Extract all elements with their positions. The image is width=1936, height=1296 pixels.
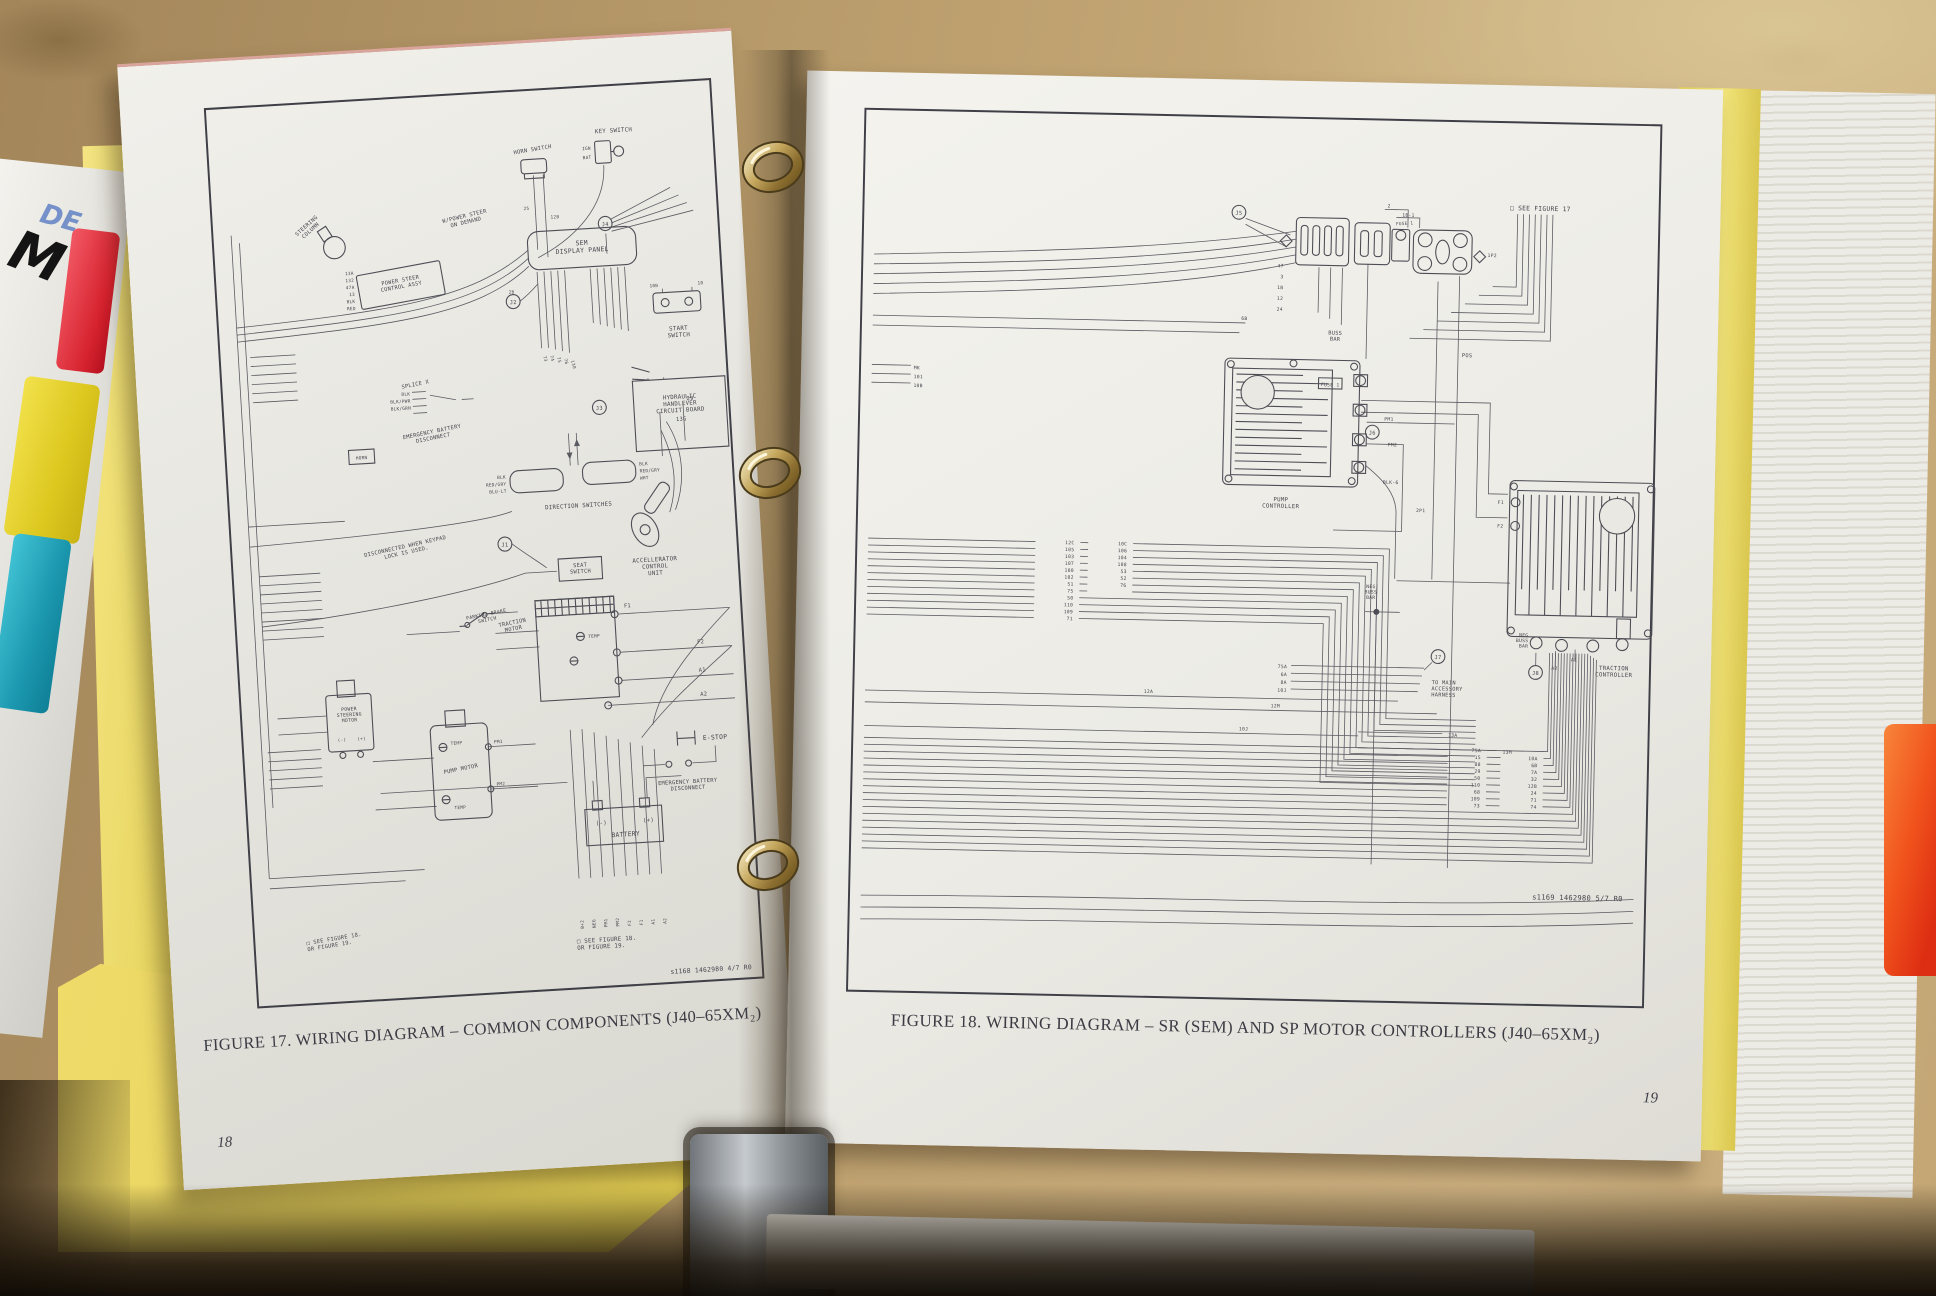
power-steering-motor-label: POWERSTEERINGMOTOR	[336, 706, 362, 725]
seat-switch-label: SEATSWITCH	[570, 562, 592, 576]
binder-rings	[688, 105, 858, 945]
wire-tag: A1	[650, 918, 656, 924]
wire-tag: 12B	[550, 214, 559, 221]
key-ign-tag: IGN	[582, 146, 591, 153]
horn-switch-label: HORN SWITCH	[513, 144, 552, 156]
connector-j8: J8	[1532, 671, 1539, 677]
wire-tag: BLK/GRN	[391, 405, 412, 412]
wire-tag: 47	[1277, 263, 1283, 269]
direction-switches-label: DIRECTION SWITCHES	[545, 501, 613, 511]
wire-tag: 12B	[1528, 784, 1537, 790]
connector-j3: J3	[596, 406, 603, 412]
wire-tag: 130	[569, 360, 577, 370]
wire-tag: NEG	[591, 919, 597, 928]
wire-tag: 106	[1118, 548, 1127, 554]
wire-tag: 52	[1120, 576, 1126, 582]
terminal-f2: F2	[1497, 524, 1503, 530]
wire-tag: 104	[1118, 555, 1127, 561]
battery-neg: (-)	[596, 820, 608, 827]
wire-tag: 51	[1067, 582, 1073, 588]
power-steer-assy-label: POWER STEERCONTROL ASSY	[379, 274, 423, 294]
wire-tag: 1B	[1277, 285, 1283, 291]
wire-tag: 8A	[1281, 680, 1287, 686]
pump-controller-label: PUMPCONTROLLER	[1262, 497, 1300, 510]
keypad-note: DISCONNECTED WHEN KEYPADLOCK IS USED.	[364, 535, 448, 565]
wire-tag: 12C	[1065, 540, 1074, 546]
page-number-18: 18	[217, 1134, 233, 1152]
wire-tag: 75A	[1472, 748, 1481, 754]
wire-tag: 13	[349, 292, 355, 298]
see-figure-17-note: □ SEE FIGURE 17	[1510, 205, 1571, 213]
wire-tag: 2	[1388, 203, 1391, 209]
sem-display-panel-label: SEMDISPLAY PANEL	[555, 237, 609, 256]
wire-tag: 10J	[1277, 688, 1286, 694]
battery-pos: (+)	[643, 818, 655, 825]
wire-tag: 3	[1280, 274, 1283, 280]
connector-j2: J2	[510, 300, 517, 306]
wire-tag: 73	[541, 355, 548, 362]
manual-page-19: □ SEE FIGURE 17 2 1B-1 47 3 1B 12 24 6B …	[785, 71, 1723, 1162]
wire-tag: 75	[1067, 589, 1073, 595]
wire-tag: 105	[1065, 547, 1074, 553]
connector-j7: J7	[1434, 655, 1441, 661]
terminal-pm1: PM1	[494, 739, 503, 746]
terminal-f1: F1	[1498, 500, 1504, 506]
ring-bottom	[739, 840, 798, 890]
wire-tag: 13M	[1502, 750, 1511, 756]
fuse-label: FUSE 1	[1321, 382, 1340, 388]
buss-bar-label: BUSSBAR	[1328, 331, 1342, 343]
wire-tag: PM2	[615, 917, 621, 926]
wire-tag: 15	[1475, 755, 1481, 761]
wire-tag: 103	[1065, 554, 1074, 560]
splice-label: SPLICE X	[401, 379, 430, 391]
see-figure-note: □ SEE FIGURE 18.OR FIGURE 19.	[577, 936, 637, 952]
wire-tag: 12A	[1144, 689, 1153, 695]
wire-tag: A2	[662, 918, 668, 924]
terminal-pm2: PM2	[1388, 442, 1397, 448]
wire-tag: BLK	[347, 299, 356, 306]
terminal-a1: A1	[1571, 657, 1577, 663]
wire-tag: 75A	[1278, 664, 1287, 670]
connector-j1: J1	[501, 542, 508, 548]
wire-tag: 88	[1474, 762, 1480, 768]
figure-18-wiring-diagram: □ SEE FIGURE 17 2 1B-1 47 3 1B 12 24 6B …	[844, 106, 1664, 1011]
doc-code: s1169 1462980 5/7 R0	[1532, 892, 1623, 903]
wire-tag: B+2	[579, 920, 585, 929]
wire-tag: 110	[1471, 783, 1480, 789]
wire-tag: 24	[1531, 791, 1537, 797]
wire-tag: 10J	[1239, 726, 1248, 732]
diagram-labels: STEERINGCOLUMN HORN SWITCH KEY SWITCH IG…	[259, 123, 752, 997]
wire-tag: 53	[1120, 569, 1126, 575]
pos-label: POS	[1462, 353, 1473, 359]
fuse-label: FUSE 1	[1396, 220, 1414, 227]
wire-tag: 71	[1530, 798, 1536, 804]
battery-label: BATTERY	[611, 830, 640, 840]
wire-tag: BLK/PWR	[390, 398, 411, 405]
connector-j6: J6	[1369, 431, 1376, 437]
wire-tag: 110	[1064, 602, 1073, 608]
power-steer-note: W/POWER STEERON DEMAND	[442, 208, 489, 231]
wire-tag: 132	[345, 278, 354, 285]
wire-tag: 10C	[1118, 541, 1127, 547]
wire-tag: 13G	[676, 416, 687, 423]
wire-tag: 101	[914, 374, 923, 380]
wire-tag: 108	[1117, 562, 1126, 568]
terminal-2p1: 2P1	[1416, 508, 1425, 514]
terminal-f1: F1	[624, 603, 631, 609]
wire-tag: PM1	[603, 918, 609, 927]
page-number-19: 19	[1643, 1090, 1658, 1107]
wire-tag: 68	[1474, 790, 1480, 796]
wire-tag: RED/GRY	[639, 467, 660, 474]
wire-tag: 10B	[649, 283, 658, 290]
wire-tag: 74	[548, 355, 555, 362]
key-bat-tag: BAT	[583, 155, 592, 162]
connector-j5: J5	[1235, 211, 1242, 217]
wire-tag: MK	[914, 365, 920, 371]
wire-tag: 13A	[345, 271, 354, 278]
wire-tag: 107	[1065, 561, 1074, 567]
component-symbols	[294, 135, 752, 861]
wire-tag: 12M	[1271, 703, 1280, 709]
figure-18-caption: FIGURE 18. WIRING DIAGRAM – SR (SEM) AND…	[787, 1008, 1703, 1047]
wire-tag: 7A	[1531, 770, 1537, 776]
pos-terminal: (+)	[357, 736, 366, 743]
wire-tag: 75	[555, 356, 562, 363]
traction-controller-label: TRACTIONCONTROLLER	[1595, 666, 1633, 679]
wire-tag: RED	[347, 306, 356, 313]
accelerator-label: ACCELLERATORCONTROLUNIT	[632, 556, 678, 578]
to-main-accessory-label: TO MAINACCESSORYHARNESS	[1431, 680, 1463, 699]
wire-tag: 2B	[509, 289, 515, 295]
key-switch-label: KEY SWITCH	[595, 127, 633, 135]
wire-tag: 109	[1471, 796, 1480, 802]
terminal-temp: TEMP	[451, 740, 463, 747]
wire-tag: WHT	[640, 475, 649, 482]
wire-tag: 74	[1530, 805, 1536, 811]
wire-tag: BLK	[497, 474, 506, 481]
wire-tag: 10A	[1528, 756, 1537, 762]
neg-buss-bar-label: NEGBUSSBAR	[1516, 632, 1529, 649]
connector-j4: J4	[602, 222, 609, 228]
terminal-1p2: 1P2	[1487, 253, 1496, 259]
bottom-shadow	[0, 1184, 1936, 1296]
terminal-pm1: PM1	[1384, 417, 1393, 423]
emergency-battery-mid-label: EMERGENCY BATTERYDISCONNECT	[402, 423, 463, 447]
horn-label: HORN	[356, 455, 368, 462]
terminal-temp: TEMP	[588, 633, 600, 640]
wire-tag: 71	[1067, 616, 1073, 622]
wire-tag: 50	[1067, 595, 1073, 601]
wire-bundle-2	[862, 639, 1597, 863]
terminal-pm2: PM2	[496, 781, 505, 788]
wire-tag: 76	[562, 358, 569, 365]
wire-tag: 1B-1	[1402, 213, 1415, 219]
neg-buss-bar-label: NEGBUSSBAR	[1364, 584, 1377, 601]
wire-tag: 73	[1474, 803, 1480, 809]
terminal-a2: A2	[1551, 666, 1557, 672]
wire-tag: 50	[1474, 776, 1480, 782]
neg-terminal: (-)	[337, 737, 346, 744]
wire-tag: 6B	[1531, 763, 1537, 769]
pump-motor-label: PUMP MOTOR	[443, 763, 479, 776]
wire-tag: 25	[523, 206, 529, 212]
wire-tag: 13A	[1448, 733, 1457, 739]
blk-6-tag: BLK-6	[1383, 480, 1399, 486]
wire-tag: 10B	[913, 383, 922, 389]
photo-open-binder: DE M	[0, 0, 1936, 1296]
wire-tag: 6A	[1281, 672, 1287, 678]
wire-tag: BLK	[639, 461, 648, 468]
wire-tag: 76	[1120, 583, 1126, 589]
steering-column-label: STEERINGCOLUMN	[294, 215, 323, 243]
index-tab-orange	[1884, 724, 1936, 976]
wire-tag: 29	[1474, 769, 1480, 775]
wire-tag: BLK	[401, 391, 410, 398]
ring-middle	[741, 448, 800, 498]
wire-tag: 102	[1064, 575, 1073, 581]
wire-tag: 24	[1277, 307, 1283, 313]
wire-tag: F1	[639, 919, 645, 925]
wire-tag: 100	[1065, 568, 1074, 574]
see-figure-note: □ SEE FIGURE 18.OR FIGURE 19.	[306, 932, 363, 953]
wire-tag: RED/GRY	[486, 481, 507, 488]
ring-top	[744, 142, 803, 192]
wire-tag: 6B	[1241, 316, 1247, 322]
wire-tag: 12	[1277, 296, 1283, 302]
figure-17-wiring-diagram: STEERINGCOLUMN HORN SWITCH KEY SWITCH IG…	[202, 76, 767, 1011]
terminal-temp: TEMP	[454, 805, 466, 812]
wire-tag: F2	[627, 920, 633, 926]
wire-tag: 32	[1531, 777, 1537, 783]
wire-tag: 109	[1064, 609, 1073, 615]
wire-tag: 47A	[346, 285, 355, 292]
wire-tag: BLU-LT	[489, 489, 507, 496]
component-symbols	[1219, 205, 1661, 682]
